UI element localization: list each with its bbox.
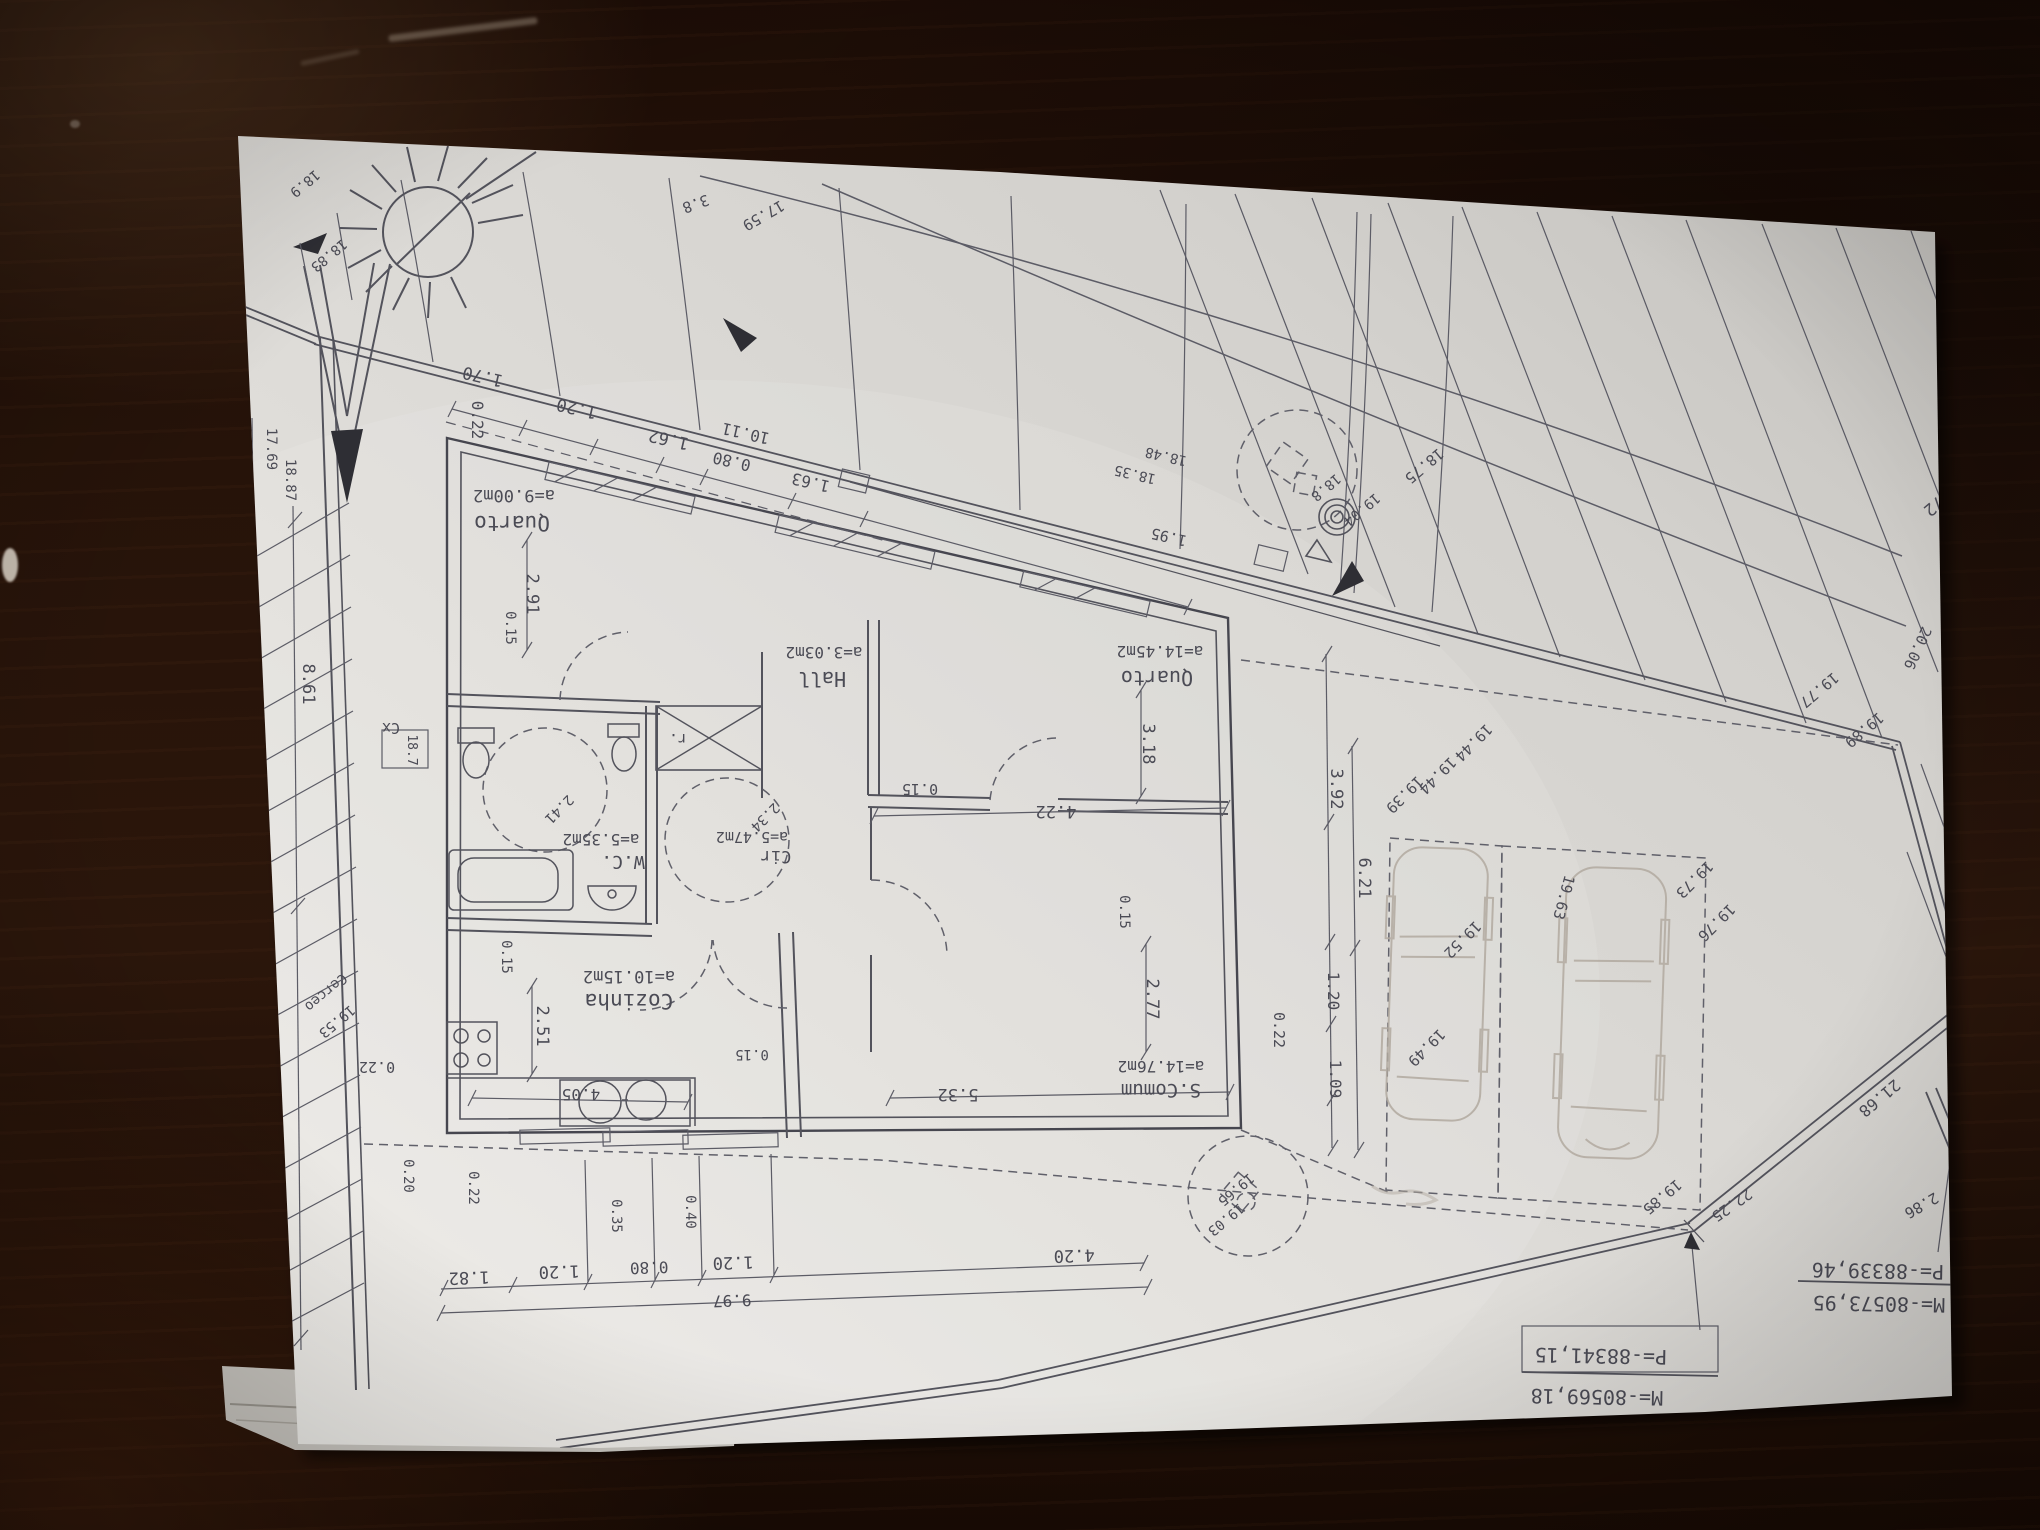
survey-label: M=-80573,95 xyxy=(1812,1291,1945,1317)
dim-label: 3.92 xyxy=(1326,769,1346,810)
elevation-label: 17.69 xyxy=(263,428,279,470)
room-name-wc: W.C. xyxy=(601,851,644,872)
dim-label: 0.22 xyxy=(465,1171,481,1205)
dim-label: 9.97 xyxy=(713,1290,752,1310)
dim-label: 4.20 xyxy=(1053,1244,1095,1265)
room-name-cir: Cir xyxy=(761,846,792,866)
room-name-cozinha: Cozinha xyxy=(585,989,674,1013)
dim-label: 0.40 xyxy=(682,1195,698,1229)
dim-label: 4.05 xyxy=(562,1085,601,1104)
dim-label: 0.15 xyxy=(502,611,518,645)
dim-label: 0.35 xyxy=(608,1199,624,1233)
room-name-scomum: S.Comum xyxy=(1121,1079,1201,1101)
dim-label: 0.22 xyxy=(468,401,487,440)
plan-photo-svg: Quarto a=9.00m2 Hall a=3.03m2 Quarto a=1… xyxy=(0,0,2040,1530)
dim-label: 6.21 xyxy=(1354,858,1374,899)
dim-label: 1.20 xyxy=(712,1251,754,1272)
room-area-cir: a=5.47m2 xyxy=(716,828,788,846)
room-area-quarto-9: a=9.00m2 xyxy=(473,485,555,505)
photo-of-floor-plan: { "colors": { "wood": "#261309", "paper_… xyxy=(0,0,2040,1530)
dim-label: 0.15 xyxy=(498,940,514,974)
dim-label: 2.77 xyxy=(1142,979,1162,1020)
dim-label: 0.22 xyxy=(359,1058,395,1076)
dim-label: 1.82 xyxy=(448,1266,490,1287)
dim-label: 8.61 xyxy=(298,664,318,705)
annotation-cx: Cx xyxy=(382,719,400,737)
dim-label: 5.32 xyxy=(938,1084,979,1104)
survey-label: M=-80569,18 xyxy=(1530,1384,1663,1410)
dim-label: 3.18 xyxy=(1138,724,1158,765)
dim-label: 0.20 xyxy=(400,1159,416,1193)
dim-label: 0.15 xyxy=(1116,895,1132,929)
room-area-hall: a=3.03m2 xyxy=(785,643,862,662)
dim-label: 0.15 xyxy=(902,780,938,798)
room-name-quarto-14: Quarto xyxy=(1121,666,1193,690)
survey-label: P=-88341,15 xyxy=(1534,1343,1667,1369)
room-name-quarto-9: Quarto xyxy=(474,511,550,535)
room-area-scomum: a=14.76m2 xyxy=(1118,1057,1205,1076)
dim-label: 2.51 xyxy=(532,1006,552,1047)
survey-label: P=-88339,46 xyxy=(1811,1258,1944,1284)
dim-label: 1.09 xyxy=(1326,1060,1345,1099)
dim-label: 1.20 xyxy=(1324,972,1343,1011)
room-area-quarto-14: a=14.45m2 xyxy=(1117,642,1204,661)
dim-label: 1.20 xyxy=(538,1260,580,1281)
room-name-hall: Hall xyxy=(798,667,846,691)
elevation-label: 18.87 xyxy=(282,459,298,501)
room-area-cozinha: a=10.15m2 xyxy=(583,966,675,986)
room-area-wc: a=5.35m2 xyxy=(562,830,639,849)
dim-label: 2.91 xyxy=(522,574,542,615)
dim-label: 0.15 xyxy=(735,1046,769,1062)
dim-label: 4.22 xyxy=(1036,801,1077,821)
annotation-cx-value: 18.7 xyxy=(404,734,419,765)
dim-label: 0.22 xyxy=(1270,1012,1288,1048)
dim-label: 0.80 xyxy=(630,1257,669,1277)
room-name-closet: r. xyxy=(669,730,687,748)
